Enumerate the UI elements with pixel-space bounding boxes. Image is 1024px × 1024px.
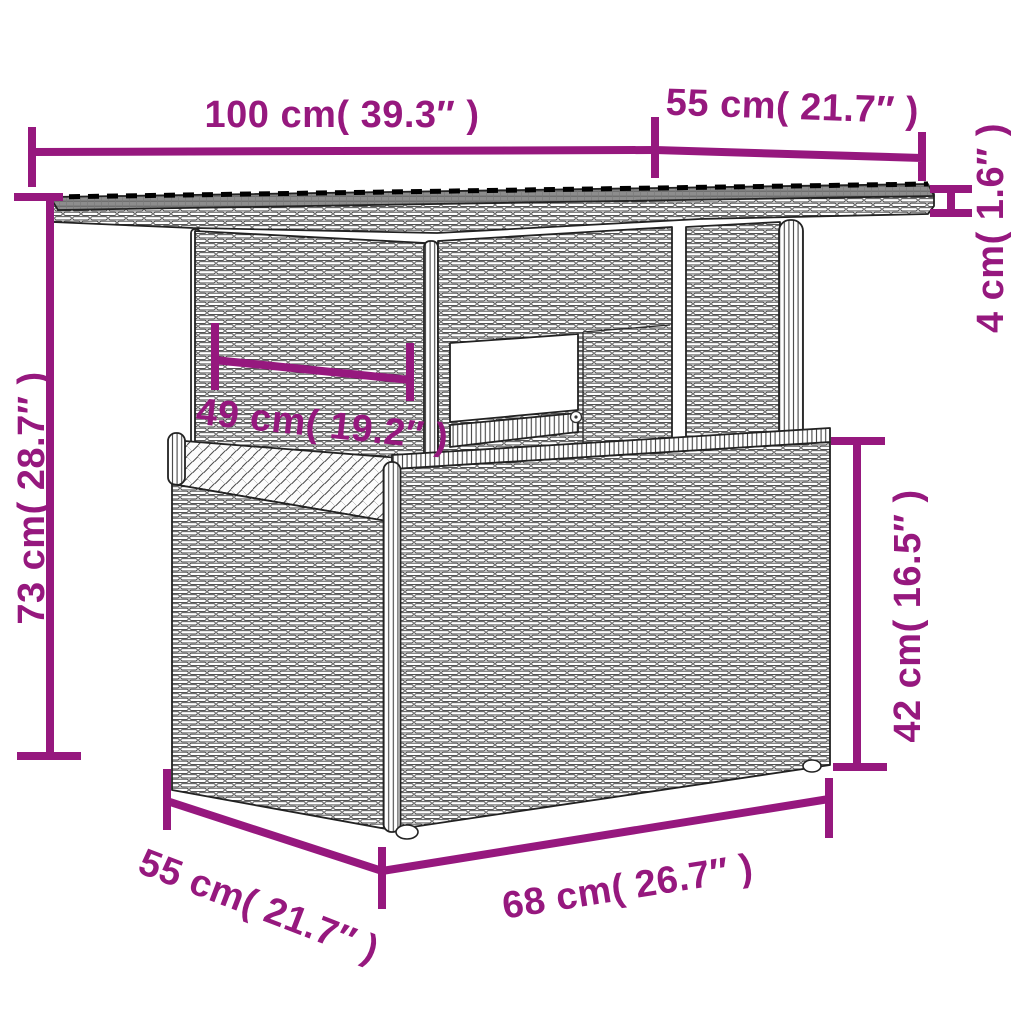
dim-base-height-label: 42 cm( 16.5″ ) xyxy=(887,489,929,742)
dim-top-thickness-label: 4 cm( 1.6″ ) xyxy=(970,123,1012,333)
base-foot-left xyxy=(396,825,418,839)
table-illustration xyxy=(50,184,934,839)
window-knob-dot xyxy=(574,415,577,418)
dim-top-depth: 55 cm( 21.7″ ) xyxy=(655,82,922,181)
table-base xyxy=(168,428,830,839)
pedestal-right-column xyxy=(686,222,780,446)
base-foot-right xyxy=(803,760,821,772)
dim-top-width-label: 100 cm( 39.3″ ) xyxy=(205,94,480,136)
pedestal-window-opening xyxy=(450,334,578,422)
base-corner-roll xyxy=(384,462,401,832)
dim-top-thickness: 4 cm( 1.6″ ) xyxy=(930,123,1012,333)
base-left-face xyxy=(172,484,392,830)
pedestal-right-roll xyxy=(779,220,803,442)
dim-top-width: 100 cm( 39.3″ ) xyxy=(32,94,655,187)
dim-base-width-label: 68 cm( 26.7″ ) xyxy=(499,846,756,927)
base-back-left-roll xyxy=(168,433,185,485)
dim-overall-height: 73 cm( 28.7″ ) xyxy=(11,197,81,756)
dimension-diagram: 100 cm( 39.3″ ) 55 cm( 21.7″ ) 4 cm( 1.6… xyxy=(0,0,1024,1024)
base-right-face xyxy=(392,442,830,830)
dim-top-depth-label: 55 cm( 21.7″ ) xyxy=(665,82,920,133)
product-dimension-screenshot: 100 cm( 39.3″ ) 55 cm( 21.7″ ) 4 cm( 1.6… xyxy=(0,0,1024,1024)
dim-base-height: 42 cm( 16.5″ ) xyxy=(831,441,929,767)
dim-overall-height-label: 73 cm( 28.7″ ) xyxy=(11,371,53,624)
